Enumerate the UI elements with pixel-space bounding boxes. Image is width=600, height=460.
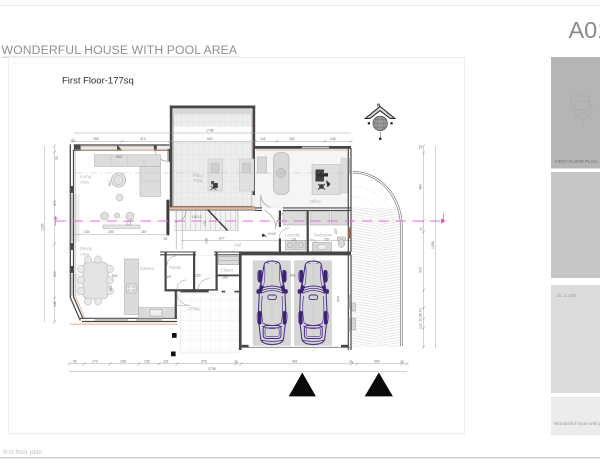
svg-text:375: 375: [201, 360, 207, 364]
svg-text:25: 25: [164, 237, 168, 241]
svg-text:150: 150: [222, 276, 228, 280]
svg-text:20: 20: [71, 138, 75, 142]
svg-text:300: 300: [374, 360, 380, 364]
svg-text:Sc 1:100: Sc 1:100: [557, 293, 576, 299]
svg-text:312: 312: [140, 137, 146, 141]
svg-text:25: 25: [349, 360, 353, 364]
svg-text:113 ,70,56,70,: 113 ,70,56,70,: [419, 308, 423, 329]
svg-text:1095: 1095: [41, 223, 45, 231]
svg-text:132: 132: [203, 220, 207, 226]
svg-text:25: 25: [234, 360, 238, 364]
svg-text:170: 170: [92, 360, 98, 364]
svg-text:168: 168: [120, 360, 126, 364]
svg-text:Office: Office: [310, 199, 322, 204]
svg-text:Area: Area: [80, 180, 90, 185]
svg-text:661: 661: [292, 360, 298, 364]
svg-text:255: 255: [93, 137, 99, 141]
svg-text:542: 542: [112, 274, 118, 278]
svg-text:532: 532: [207, 137, 213, 141]
svg-text:170sq: 170sq: [188, 306, 200, 311]
svg-text:661: 661: [290, 274, 296, 278]
svg-text:125: 125: [165, 275, 171, 279]
svg-text:149: 149: [53, 301, 57, 307]
svg-text:515: 515: [109, 285, 113, 291]
svg-text:250: 250: [53, 271, 57, 277]
svg-text:Pantry: Pantry: [169, 265, 182, 270]
svg-text:Area: Area: [80, 252, 90, 257]
svg-text:82: 82: [73, 360, 77, 364]
svg-text:1:8/1:2: 1:8/1:2: [192, 215, 202, 219]
svg-text:257: 257: [324, 238, 330, 242]
svg-text:Closet: Closet: [221, 268, 234, 273]
svg-text:70sq: 70sq: [193, 178, 203, 183]
svg-text:First Floor-177sq: First Floor-177sq: [62, 76, 134, 87]
svg-text:483: 483: [419, 184, 423, 190]
svg-text:25: 25: [419, 145, 423, 149]
svg-text:200: 200: [108, 230, 114, 234]
svg-text:245: 245: [330, 137, 336, 141]
svg-text:187: 187: [141, 230, 147, 234]
svg-text:1738: 1738: [208, 367, 216, 371]
svg-text:1738: 1738: [206, 129, 214, 133]
svg-text:Dining: Dining: [80, 246, 93, 251]
svg-text:372: 372: [419, 267, 423, 273]
svg-text:FIRST FLOOR PLAN: FIRST FLOOR PLAN: [555, 159, 597, 164]
svg-text:540: 540: [116, 155, 122, 159]
svg-text:A01: A01: [569, 17, 600, 43]
svg-text:118: 118: [260, 137, 266, 141]
svg-text:130: 130: [144, 360, 150, 364]
svg-text:25: 25: [55, 156, 59, 160]
svg-text:154: 154: [84, 230, 90, 234]
svg-text:25: 25: [400, 360, 404, 364]
svg-text:70: 70: [420, 227, 424, 231]
svg-text:Hall: Hall: [234, 243, 241, 248]
svg-text:Living: Living: [80, 174, 92, 179]
svg-text:150: 150: [195, 274, 201, 278]
svg-text:250: 250: [289, 137, 295, 141]
svg-text:574: 574: [337, 296, 341, 302]
svg-text:WONDERFUL HOUSE WITH POOL AREA: WONDERFUL HOUSE WITH POOL AREA: [2, 43, 238, 57]
svg-text:118: 118: [163, 360, 169, 364]
svg-text:Kitchen: Kitchen: [140, 266, 155, 271]
svg-text:+0.00: +0.00: [268, 232, 277, 236]
svg-text:138: 138: [205, 238, 209, 244]
svg-text:first floor plan: first floor plan: [3, 449, 42, 456]
svg-text:510: 510: [108, 180, 112, 186]
svg-text:1258: 1258: [431, 241, 435, 249]
svg-text:237: 237: [334, 228, 338, 234]
svg-text:131: 131: [291, 238, 297, 242]
svg-text:670: 670: [53, 200, 57, 206]
svg-text:677: 677: [219, 237, 225, 241]
svg-text:Wonderful houe with pool: Wonderful houe with pool: [554, 421, 600, 427]
